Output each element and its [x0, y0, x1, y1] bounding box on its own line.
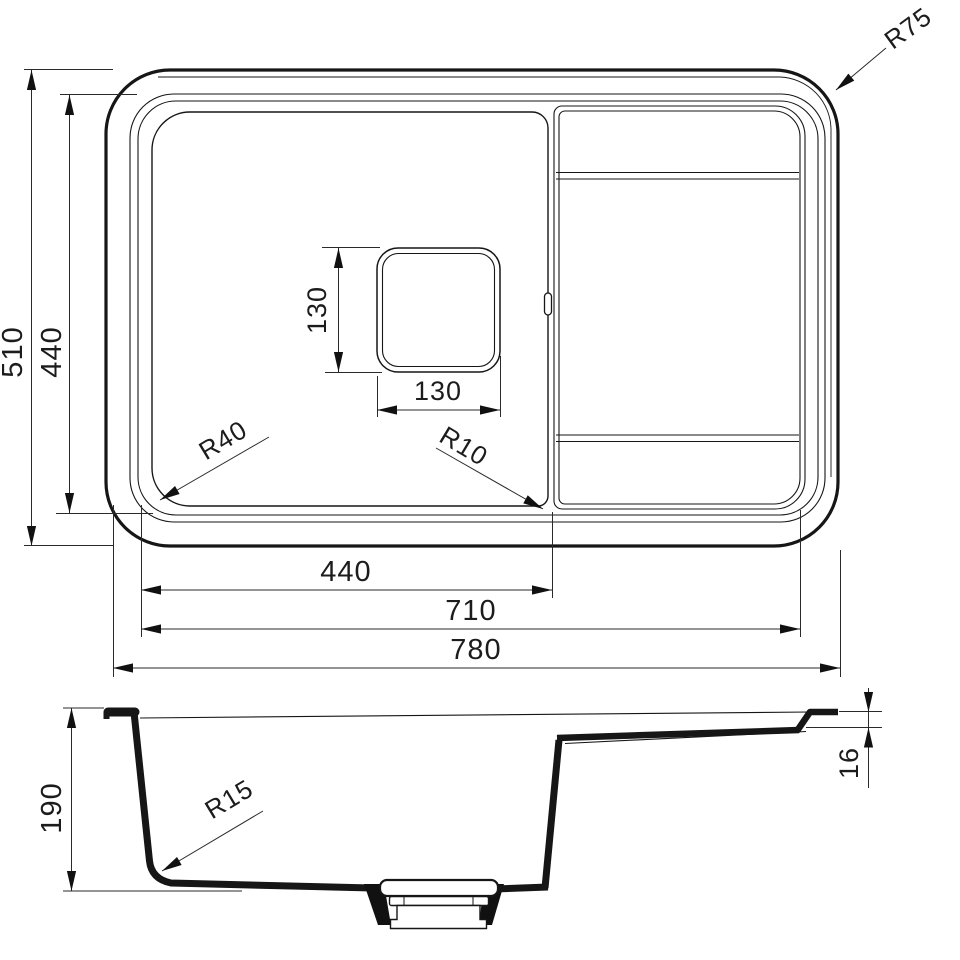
dim-inner-depth: 440: [36, 95, 153, 514]
back-edge-line: [140, 712, 810, 718]
drainboard-groove-upper: [556, 173, 799, 180]
dim-label-780: 780: [450, 634, 501, 666]
radius-label-r40: R40: [194, 414, 253, 466]
radius-callout-r40: R40: [158, 414, 269, 504]
dim-overall-depth: 510: [0, 70, 113, 547]
dim-label-510: 510: [0, 326, 29, 377]
dim-rim-thickness: 16: [806, 688, 882, 788]
section-view: 190 16 R15: [36, 688, 882, 929]
dim-label-130v: 130: [302, 286, 332, 334]
radius-label-r15: R15: [200, 773, 259, 825]
right-rim-step: [797, 712, 838, 731]
dim-drain-width: 130: [377, 356, 501, 417]
overflow-slot: [545, 293, 552, 315]
drain-strainer: [380, 880, 498, 929]
floor-right: [494, 887, 548, 889]
sink-outline: [106, 70, 838, 546]
dim-label-710: 710: [445, 595, 496, 627]
dim-label-16: 16: [834, 747, 864, 779]
drainboard-outer: [554, 106, 805, 509]
drainboard-inner: [559, 111, 800, 504]
dim-label-190: 190: [36, 782, 68, 833]
strainer-cap: [380, 880, 498, 896]
radius-label-r75: R75: [879, 1, 938, 55]
top-view: 510 440 130 130 4: [0, 1, 937, 677]
dim-overall-width: 780: [113, 634, 840, 673]
bowl-right-wall: [545, 740, 559, 888]
dim-bowl-width: 440: [141, 556, 552, 595]
dim-inner-width: 710: [141, 595, 800, 634]
drawing-canvas: 510 440 130 130 4: [0, 0, 960, 960]
drain-square-inner: [383, 254, 495, 367]
drain-square-outer: [377, 248, 500, 372]
dim-label-440h: 440: [320, 556, 371, 588]
radius-callout-r10: R10: [435, 420, 546, 513]
drainboard: [554, 106, 805, 509]
radius-callout-r15: R15: [160, 773, 263, 875]
dim-drain-height: 130: [302, 248, 382, 373]
strainer-body: [391, 906, 487, 929]
dim-label-440v: 440: [36, 326, 68, 377]
outer-edge: [106, 70, 838, 546]
drainboard-groove-lower: [556, 435, 799, 442]
radius-callout-r75: R75: [833, 1, 937, 94]
sink-technical-drawing: 510 440 130 130 4: [0, 0, 960, 960]
dim-label-130h: 130: [414, 376, 462, 406]
